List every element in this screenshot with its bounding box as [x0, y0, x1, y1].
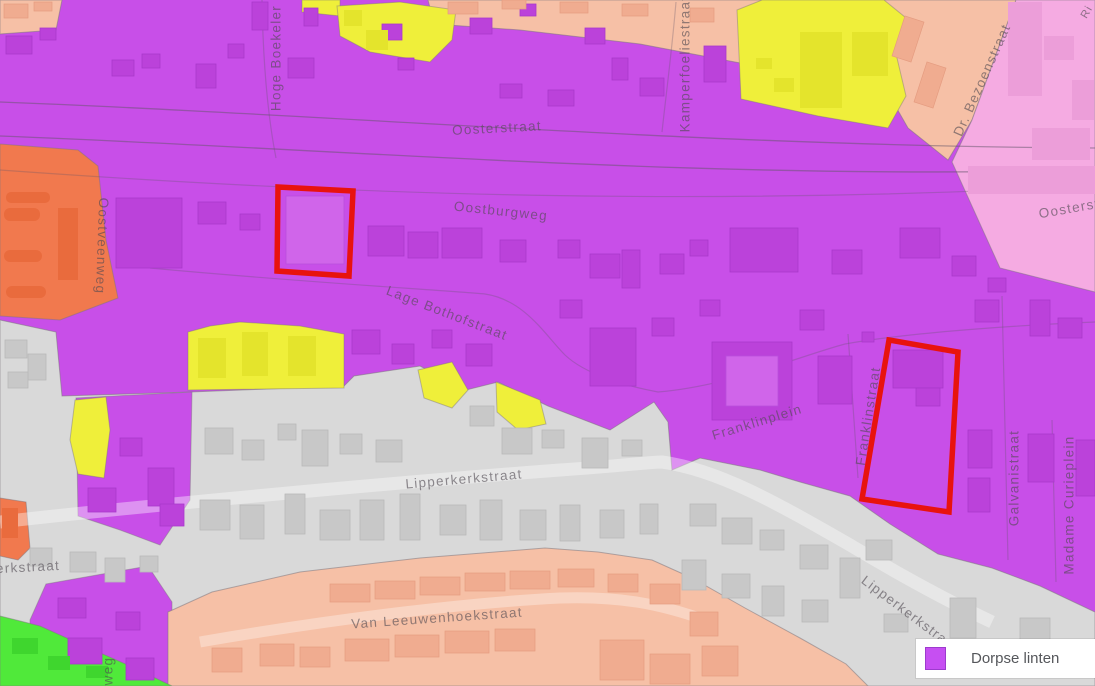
- legend-label-dorpse-linten: Dorpse linten: [971, 650, 1059, 667]
- legend: Dorpse linten: [916, 639, 1095, 678]
- zone-yellow-patch-a: [70, 397, 110, 478]
- zoning-map[interactable]: Oosterstraat Oostburgweg Lage Bothofstra…: [0, 0, 1095, 686]
- legend-swatch-dorpse-linten: [925, 647, 946, 670]
- map-canvas: [0, 0, 1095, 686]
